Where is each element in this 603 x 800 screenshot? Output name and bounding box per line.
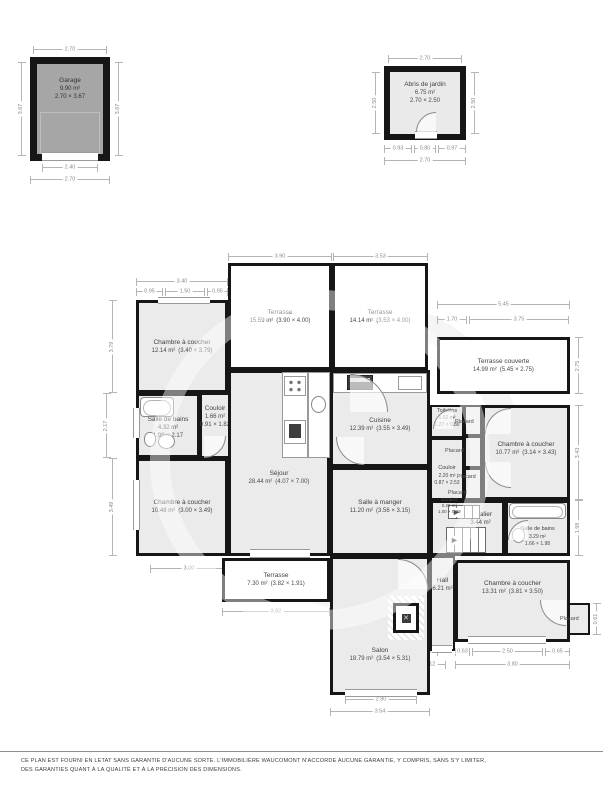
room-area: 9.90 m² bbox=[60, 85, 80, 93]
room-size: 0.91 × 1.82 bbox=[200, 421, 230, 429]
room-label: Terrasse 14.14 m²(3.53 × 4.00) bbox=[350, 308, 411, 325]
room-chambre-1: Chambre à coucher 12.14 m²(3.40 × 3.79) bbox=[136, 300, 228, 393]
room-area: 10.77 m² bbox=[496, 450, 520, 456]
room-area: 12.14 m² bbox=[152, 348, 176, 354]
room-name: Chambre à coucher bbox=[153, 498, 210, 507]
room-area: 14.14 m² bbox=[350, 318, 374, 324]
fireplace-core: ✕ bbox=[402, 614, 411, 623]
dimension-line: 3.67 bbox=[118, 62, 119, 156]
dimension-line: 1.98 bbox=[578, 500, 579, 556]
room-name: Garage bbox=[59, 76, 81, 85]
dimension-value: 0.63 bbox=[455, 649, 470, 655]
room-area: 1.66 m² bbox=[205, 413, 225, 421]
dimension-line: 1.70 bbox=[437, 319, 467, 320]
room-size: (5.45 × 2.75) bbox=[500, 367, 534, 373]
room-chambre-2: Chambre à coucher 10.48 m²(3.00 × 3.49) bbox=[136, 458, 228, 556]
room-terrasse-1: Terrasse 15.59 m²(3.90 × 4.00) bbox=[228, 263, 332, 370]
room-size: (3.56 × 3.15) bbox=[376, 508, 410, 514]
dimension-line: 0.95 bbox=[207, 291, 228, 292]
dimension-line: 3.49 bbox=[112, 458, 113, 556]
room-area: 14.99 m² bbox=[473, 367, 497, 373]
dimension-value: 2.70 bbox=[418, 158, 433, 164]
dimension-value: 0.93 bbox=[391, 146, 406, 152]
dimension-value: 0.80 bbox=[418, 146, 433, 152]
dimension-line: 0.95 bbox=[136, 291, 163, 292]
window bbox=[133, 480, 140, 530]
room-size: (3.54 × 5.31) bbox=[376, 656, 410, 662]
room-name: Chambre à coucher bbox=[484, 579, 541, 588]
room-area: 18.79 m² bbox=[350, 656, 374, 662]
toilet-icon bbox=[144, 432, 156, 447]
room-size: (3.53 × 4.00) bbox=[376, 318, 410, 324]
placard-label: Placard bbox=[457, 474, 476, 480]
dimension-value: 2.70 bbox=[63, 177, 78, 183]
room-area: 10.48 m² bbox=[152, 508, 176, 514]
dimension-line: 2.80 bbox=[345, 699, 417, 700]
dimension-value: 2.50 bbox=[471, 96, 477, 111]
dimension-line: 0.65 bbox=[545, 651, 570, 652]
room-name: Séjour bbox=[270, 469, 289, 478]
room-label: Salon 18.79 m²(3.54 × 5.31) bbox=[350, 646, 411, 663]
placard-label: Placard bbox=[448, 490, 467, 496]
room-label: Chambre à coucher 10.77 m²(3.14 × 3.43) bbox=[496, 440, 557, 457]
room-name: Abris de jardin bbox=[404, 80, 446, 89]
room-size: 2.70 × 2.50 bbox=[410, 97, 440, 105]
dimension-value: 3.80 bbox=[505, 662, 520, 668]
room-name: Couloir bbox=[438, 465, 455, 473]
room-name: Chambre à coucher bbox=[497, 440, 554, 449]
room-area: 3.29 m² bbox=[529, 534, 546, 541]
room-label: Couloir 1.66 m² 0.91 × 1.82 bbox=[200, 404, 230, 430]
room-size: (4.07 × 7.00) bbox=[275, 479, 309, 485]
dimension-line: 0.97 bbox=[438, 148, 466, 149]
room-size: (3.14 × 3.43) bbox=[522, 450, 556, 456]
fireplace-box: ✕ bbox=[393, 603, 419, 633]
room-size: (3.82 × 1.91) bbox=[271, 581, 305, 587]
room-area: 0.29 m² bbox=[442, 503, 457, 508]
dimension-value: 3.54 bbox=[373, 709, 388, 715]
room-size: 1.66 × 1.98 bbox=[525, 541, 550, 548]
dimension-value: 3.90 bbox=[273, 254, 288, 260]
room-label: Terrasse 15.59 m²(3.90 × 4.00) bbox=[250, 308, 311, 325]
dimension-value: 0.65 bbox=[550, 649, 565, 655]
window bbox=[345, 689, 417, 697]
placard-label: Placard bbox=[445, 448, 464, 454]
dimension-value: 2.40 bbox=[63, 165, 78, 171]
room-label: Cuisine 12.39 m²(3.55 × 3.49) bbox=[350, 416, 411, 433]
room-size: 0.87 × 2.53 bbox=[434, 480, 459, 487]
garage-door-opening bbox=[42, 152, 98, 161]
room-label: Terrasse 7.30 m²(3.82 × 1.91) bbox=[247, 571, 305, 588]
dimension-line: 3.40 bbox=[136, 281, 228, 282]
stove-icon bbox=[284, 376, 306, 396]
floor-plan-page: Garage 9.90 m² 2.70 × 3.67 2.70 3.67 3.6… bbox=[0, 0, 603, 800]
room-name: Terrasse bbox=[268, 308, 293, 317]
dimension-line: 0.93 bbox=[384, 148, 412, 149]
room-area: 6.21 m² bbox=[432, 585, 452, 593]
room-area: 7.30 m² bbox=[247, 581, 267, 587]
room-name: Cuisine bbox=[369, 416, 391, 425]
room-name: Salle à manger bbox=[358, 498, 402, 507]
dimension-value: 5.45 bbox=[496, 302, 511, 308]
bathtub-icon bbox=[509, 503, 566, 519]
washbasin-icon bbox=[158, 434, 175, 449]
dimension-value: 2.70 bbox=[63, 47, 78, 53]
dimension-line: 3.43 bbox=[578, 405, 579, 500]
room-name: Escalier bbox=[441, 497, 457, 502]
stairs-icon: ► bbox=[446, 527, 486, 553]
entrance-door-opening bbox=[432, 645, 452, 653]
room-area: 15.59 m² bbox=[250, 318, 274, 324]
dimension-line: 3.67 bbox=[21, 62, 22, 156]
dimension-line: 2.50 bbox=[474, 72, 475, 134]
dimension-value: 2.70 bbox=[418, 56, 433, 62]
dimension-line: 2.17 bbox=[106, 393, 107, 458]
dimension-value: 0.95 bbox=[142, 289, 157, 295]
closet-placard-2 bbox=[464, 436, 482, 468]
room-label: Chambre à coucher 13.31 m²(3.81 × 3.50) bbox=[482, 579, 543, 596]
dimension-line: 3.80 bbox=[455, 664, 570, 665]
room-label: Salle à manger 11.20 m²(3.56 × 3.15) bbox=[350, 498, 410, 515]
room-name: Terrasse bbox=[368, 308, 393, 317]
room-size: (3.00 × 3.49) bbox=[178, 508, 212, 514]
dimension-line: 2.75 bbox=[578, 337, 579, 394]
room-label: Séjour 28.44 m²(4.07 × 7.00) bbox=[249, 469, 310, 486]
dimension-value: 1.98 bbox=[575, 521, 581, 536]
window bbox=[133, 408, 140, 438]
room-size: 2.70 × 3.67 bbox=[55, 93, 85, 101]
dimension-value: 3.79 bbox=[109, 339, 115, 354]
dimension-line: 3.75 bbox=[469, 319, 569, 320]
dimension-value: 2.80 bbox=[374, 697, 389, 703]
dimension-line: 2.70 bbox=[33, 49, 107, 50]
oven-icon bbox=[284, 420, 306, 444]
disclaimer-text: CE PLAN EST FOURNI EN LETAT SANS GARANTI… bbox=[21, 757, 491, 776]
room-label: Couloir 2.20 m² 0.87 × 2.53 bbox=[434, 465, 459, 487]
room-terrasse-couverte: Terrasse couverte 14.99 m²(5.45 × 2.75) bbox=[437, 337, 570, 394]
dimension-line: 0.80 bbox=[414, 148, 436, 149]
footer-divider bbox=[0, 751, 603, 752]
room-name: Terrasse bbox=[264, 571, 289, 580]
dimension-value: 3.75 bbox=[512, 317, 527, 323]
dimension-value: 2.50 bbox=[372, 96, 378, 111]
dishwasher-icon bbox=[398, 376, 422, 390]
room-size: (3.81 × 3.50) bbox=[509, 589, 543, 595]
room-size: (3.55 × 3.49) bbox=[376, 426, 410, 432]
room-salle-a-manger: Salle à manger 11.20 m²(3.56 × 3.15) bbox=[330, 467, 430, 556]
kitchen-counter bbox=[308, 372, 330, 458]
window bbox=[158, 297, 210, 304]
dimension-line: 0.63 bbox=[455, 651, 470, 652]
placard-label: Placard bbox=[455, 419, 474, 425]
dimension-line: 3.82 bbox=[222, 611, 330, 612]
window bbox=[468, 636, 546, 644]
room-hall: Hall 6.21 m² bbox=[430, 556, 455, 651]
dimension-value: 3.53 bbox=[373, 254, 388, 260]
dimension-value: 2.50 bbox=[500, 649, 515, 655]
dimension-value: 0.95 bbox=[210, 289, 225, 295]
sink-icon bbox=[311, 396, 326, 413]
room-area: 13.31 m² bbox=[482, 589, 506, 595]
room-name: Couloir bbox=[205, 404, 226, 413]
room-name: Salon bbox=[372, 646, 389, 655]
dimension-value: 3.67 bbox=[18, 102, 24, 117]
dimension-value: 3.40 bbox=[175, 279, 190, 285]
room-area: 4.32 m² bbox=[158, 424, 178, 432]
dimension-line: 5.45 bbox=[437, 304, 570, 305]
room-area: 2.20 m² bbox=[439, 473, 456, 480]
dimension-line: 1.50 bbox=[165, 291, 205, 292]
small-stair-label: Escalier 0.29 m² 1.00 × 0.29 bbox=[438, 497, 461, 515]
placard-label: Placard bbox=[560, 616, 579, 622]
room-size: 1.00 × 0.29 bbox=[438, 509, 461, 514]
room-area: 6.75 m² bbox=[415, 89, 435, 97]
room-area: 28.44 m² bbox=[249, 479, 273, 485]
room-name: Terrasse couverte bbox=[478, 357, 530, 366]
dimension-value: 1.50 bbox=[178, 289, 193, 295]
dimension-value: 3.49 bbox=[109, 500, 115, 515]
room-name: Hall bbox=[437, 576, 448, 585]
dimension-value: 3.00 bbox=[182, 566, 197, 572]
dimension-value: 3.43 bbox=[575, 445, 581, 460]
room-size: (3.40 × 3.79) bbox=[178, 348, 212, 354]
room-label: Chambre à coucher 10.48 m²(3.00 × 3.49) bbox=[152, 498, 213, 515]
closet-placard-3 bbox=[464, 468, 482, 500]
room-name: Chambre à coucher bbox=[153, 338, 210, 347]
dimension-value: 0.61 bbox=[593, 612, 599, 627]
garage-label: Garage 9.90 m² 2.70 × 3.67 bbox=[55, 76, 85, 102]
dimension-line: 0.61 bbox=[596, 603, 597, 635]
room-area: 11.20 m² bbox=[350, 508, 373, 514]
room-label: Chambre à coucher 12.14 m²(3.40 × 3.79) bbox=[152, 338, 213, 355]
dimension-line: 3.79 bbox=[112, 300, 113, 393]
room-label: Terrasse couverte 14.99 m²(5.45 × 2.75) bbox=[473, 357, 534, 374]
bathtub-icon bbox=[140, 397, 174, 417]
dimension-line: 3.90 bbox=[228, 256, 332, 257]
dimension-value: 2.75 bbox=[575, 358, 581, 373]
direction-arrow-icon: ► bbox=[449, 536, 460, 545]
shed-label: Abris de jardin 6.75 m² 2.70 × 2.50 bbox=[404, 80, 446, 106]
dimension-line: 2.50 bbox=[472, 651, 543, 652]
dimension-line: 2.70 bbox=[384, 160, 466, 161]
garage-inner-slab bbox=[40, 112, 100, 154]
dimension-value: 0.97 bbox=[445, 146, 460, 152]
dimension-line: 3.00 bbox=[150, 568, 228, 569]
room-terrasse-2: Terrasse 14.14 m²(3.53 × 4.00) bbox=[332, 263, 428, 370]
dimension-line: 3.54 bbox=[330, 711, 430, 712]
dimension-value: 3.67 bbox=[115, 102, 121, 117]
room-label: Hall 6.21 m² bbox=[432, 576, 452, 593]
room-terrasse-3: Terrasse 7.30 m²(3.82 × 1.91) bbox=[222, 558, 330, 602]
room-size: (3.90 × 4.00) bbox=[276, 318, 310, 324]
shed-door-opening bbox=[415, 131, 437, 139]
dimension-value: 2.17 bbox=[103, 418, 109, 433]
dimension-value: 1.70 bbox=[445, 317, 460, 323]
dimension-line: 2.70 bbox=[30, 179, 110, 180]
fireplace-icon: ✕ bbox=[388, 596, 424, 640]
dimension-line: 2.40 bbox=[42, 167, 98, 168]
dimension-line: 2.70 bbox=[388, 58, 462, 59]
dimension-line: 3.53 bbox=[333, 256, 428, 257]
room-area: 12.39 m² bbox=[350, 426, 374, 432]
double-door-opening bbox=[250, 549, 310, 558]
dimension-line: 2.50 bbox=[375, 72, 376, 134]
dimension-value: 3.82 bbox=[269, 609, 284, 615]
